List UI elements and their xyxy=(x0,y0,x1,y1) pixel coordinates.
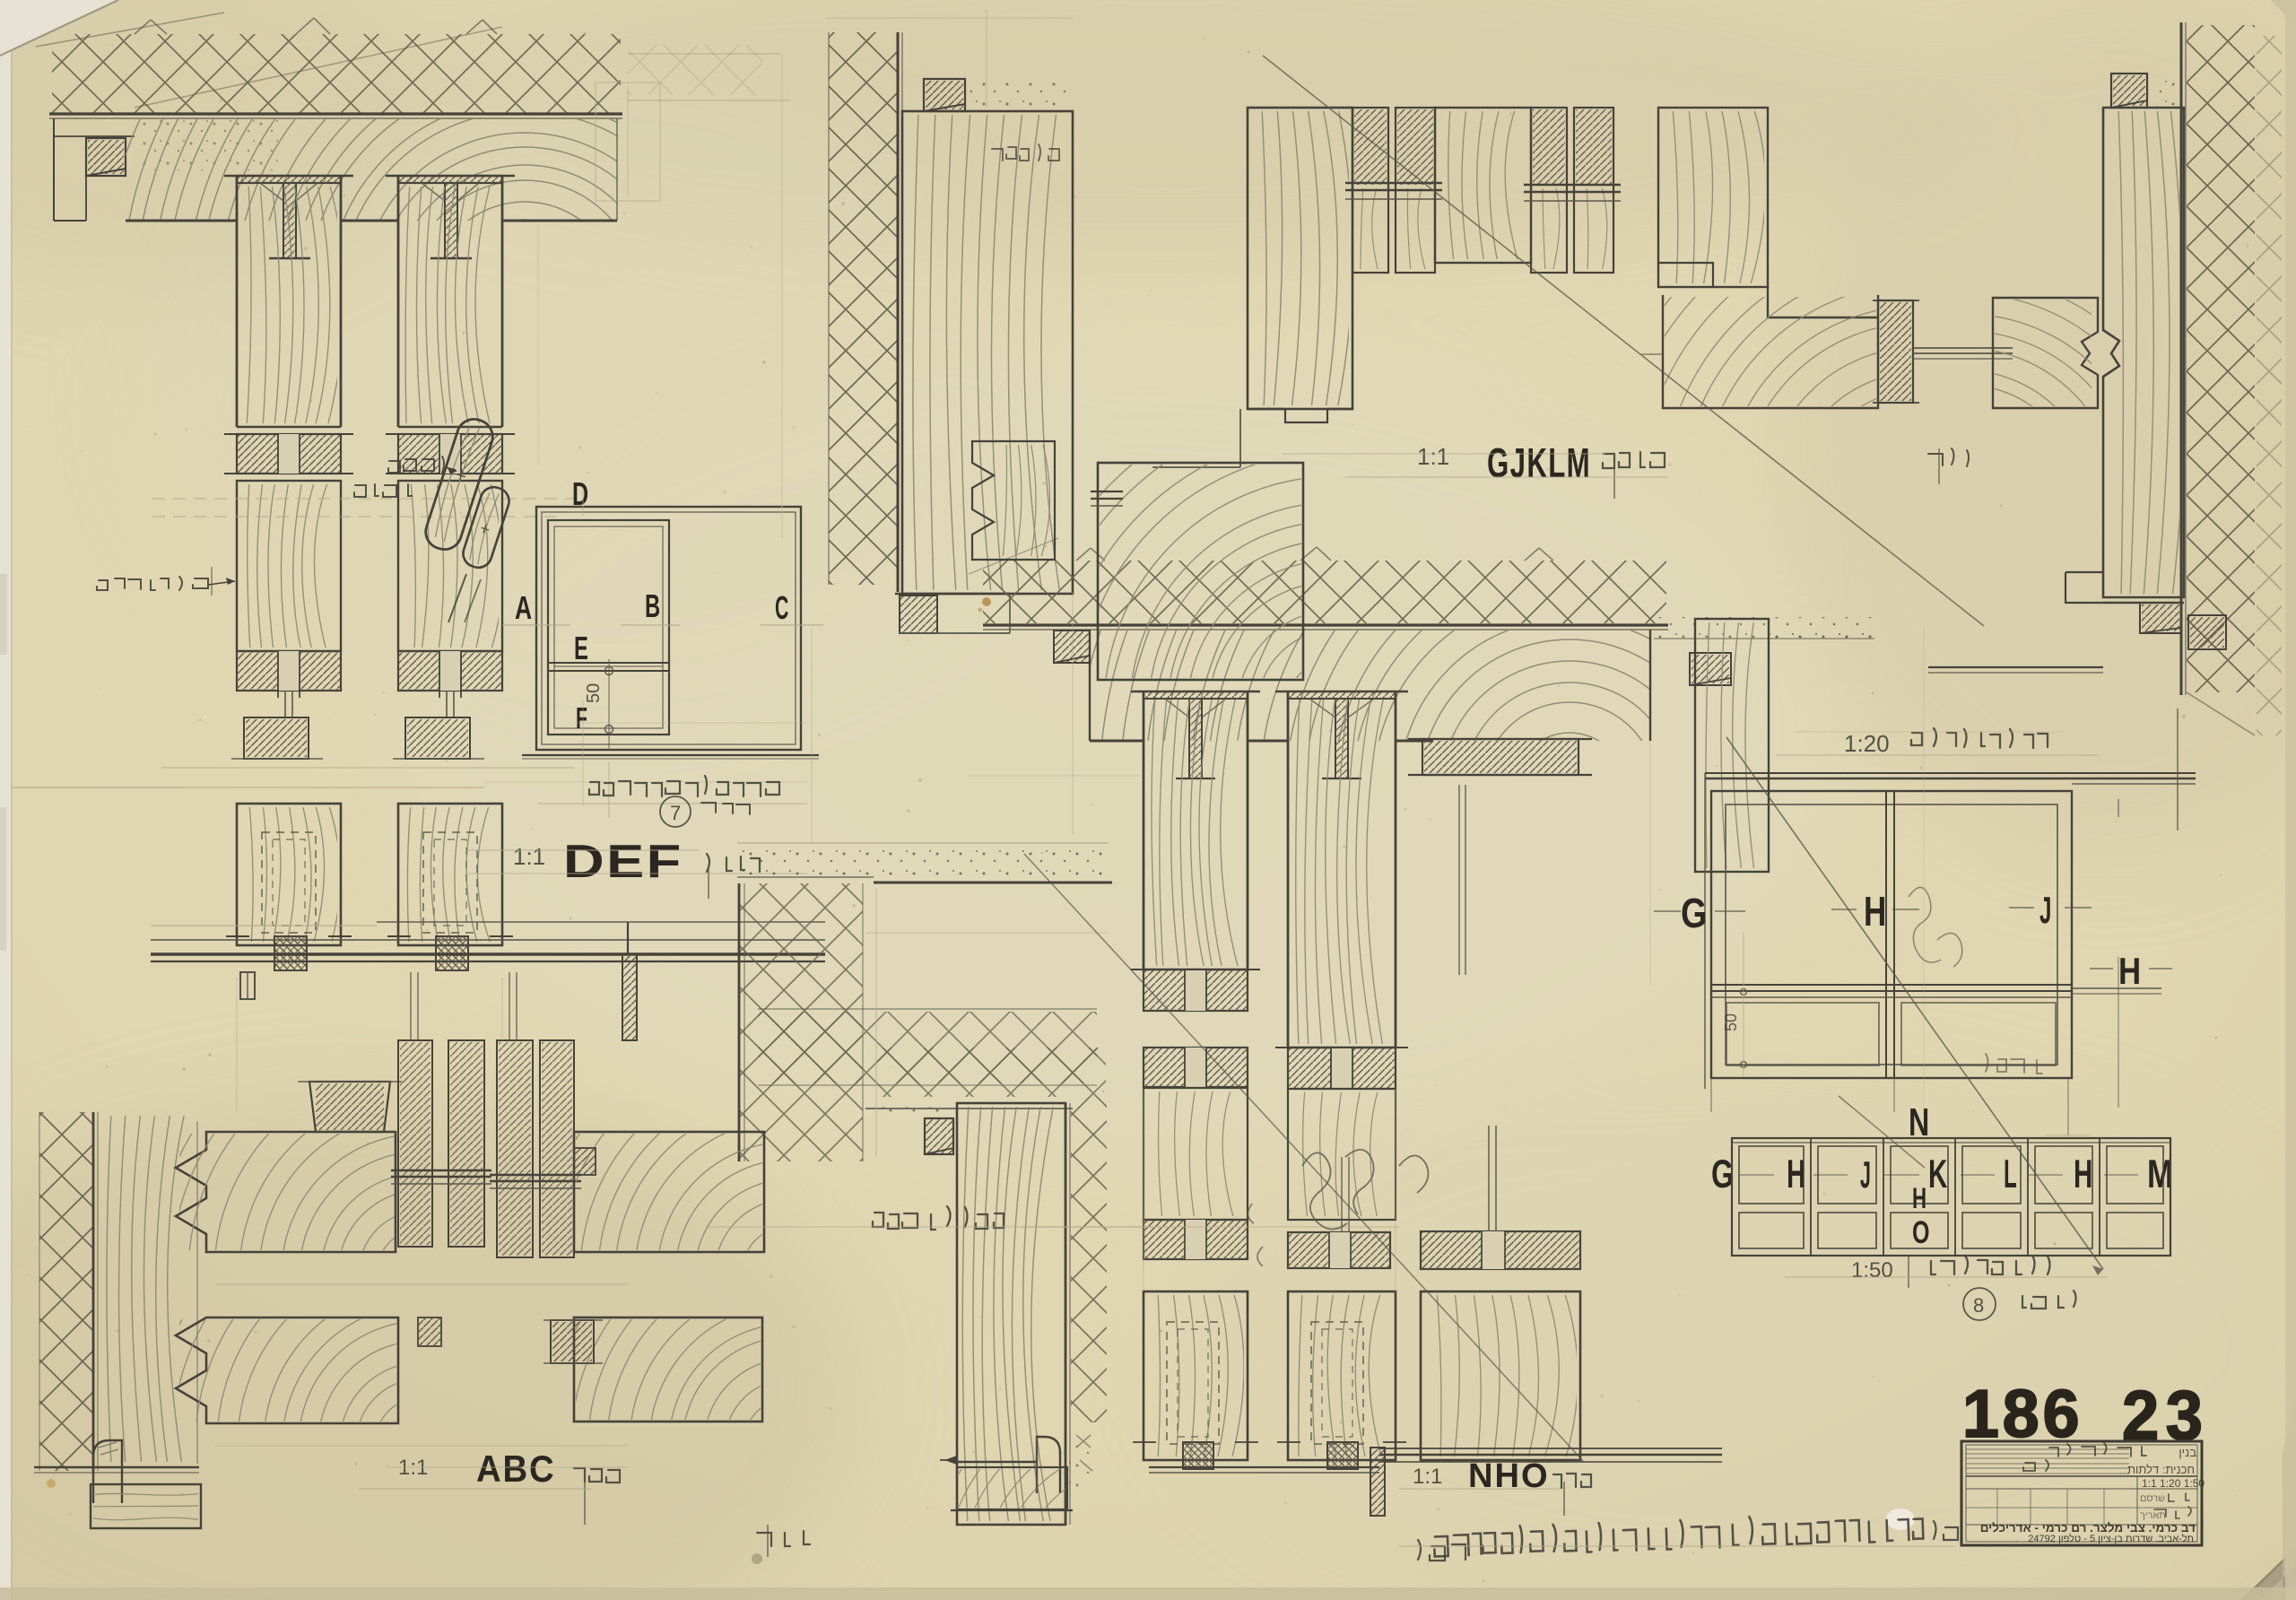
svg-text:1:1: 1:1 xyxy=(1417,443,1449,470)
svg-text:תל-אביב. שדרות בן-ציון 5 - טלפ: תל-אביב. שדרות בן-ציון 5 - טלפון 24792 xyxy=(2028,1533,2194,1544)
svg-text:8: 8 xyxy=(1973,1294,1984,1317)
svg-text:1:50: 1:50 xyxy=(1851,1258,1893,1283)
svg-text:J: J xyxy=(2039,890,2053,932)
svg-text:דב כרמי. צבי מלצר. רם כרמי - א: דב כרמי. צבי מלצר. רם כרמי - אדריכלים xyxy=(1980,1521,2196,1535)
svg-text:7: 7 xyxy=(670,802,681,824)
svg-text:GJKLM: GJKLM xyxy=(1487,440,1591,487)
svg-text:B: B xyxy=(645,587,662,624)
svg-text:תאריך: תאריך xyxy=(2140,1510,2166,1521)
svg-text:C: C xyxy=(775,590,789,626)
svg-text:O: O xyxy=(1912,1215,1931,1250)
svg-text:23: 23 xyxy=(2122,1377,2210,1455)
svg-text:1:1: 1:1 xyxy=(1413,1465,1442,1489)
svg-text:בנין: בנין xyxy=(2179,1446,2196,1459)
svg-text:1:20: 1:20 xyxy=(1844,730,1890,757)
svg-text:K: K xyxy=(1928,1152,1949,1197)
svg-text:L: L xyxy=(2004,1151,2018,1196)
svg-text:50: 50 xyxy=(1722,1013,1740,1031)
svg-text:H: H xyxy=(2074,1152,2094,1197)
svg-text:ABC: ABC xyxy=(476,1448,556,1490)
svg-text:D: D xyxy=(572,475,590,512)
svg-text:H: H xyxy=(2118,951,2143,993)
svg-text:DEF: DEF xyxy=(563,836,683,887)
svg-text:H: H xyxy=(1864,888,1888,935)
svg-text:חכנית: דלתות: חכנית: דלתות xyxy=(2127,1463,2195,1476)
svg-text:F: F xyxy=(576,701,588,735)
svg-text:J: J xyxy=(1860,1154,1872,1196)
svg-text:NHO: NHO xyxy=(1468,1457,1550,1495)
svg-text:A: A xyxy=(515,589,534,626)
svg-text:H: H xyxy=(1912,1182,1927,1214)
svg-text:E: E xyxy=(574,630,589,666)
svg-text:1:1: 1:1 xyxy=(513,843,545,870)
svg-text:שרסם: שרסם xyxy=(2140,1493,2165,1504)
svg-text:1:1 1:20 1:50: 1:1 1:20 1:50 xyxy=(2142,1477,2205,1490)
svg-text:50: 50 xyxy=(584,683,604,703)
svg-text:G: G xyxy=(1681,890,1709,935)
